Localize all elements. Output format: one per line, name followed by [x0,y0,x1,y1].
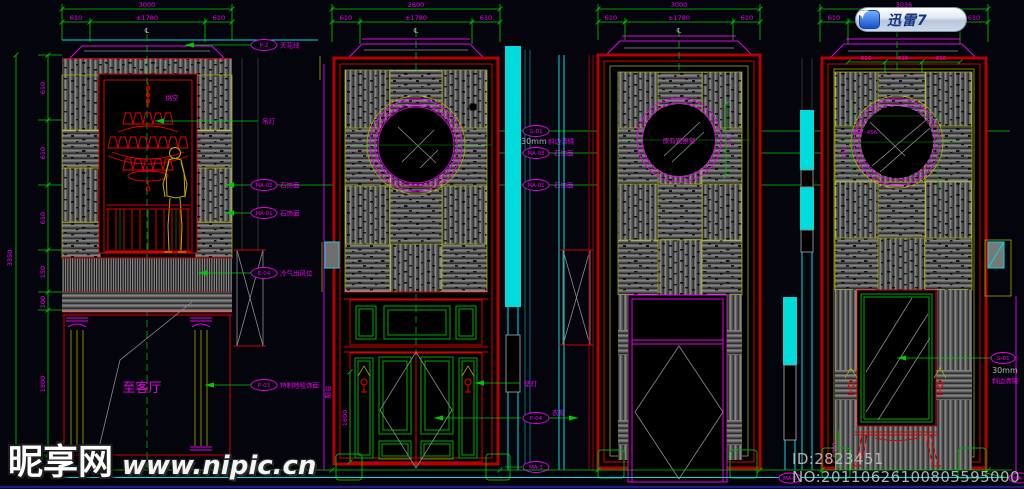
e3-dim-center: ±1780 [668,14,690,22]
e3-window-width: 610 [725,134,733,146]
e2-dim-left: 610 [340,14,352,22]
e3-dim-right: 610 [741,14,753,22]
e4-sub1: 610 [861,56,872,62]
door-leaves [350,352,482,468]
e4-circle-h: 610 [842,146,848,157]
e4-dim-left: 610 [828,14,840,22]
e2-mirror-tag: G-01 [529,129,542,135]
e1-dim-right: 610 [213,14,225,22]
e2-side-text: 阳台 [323,386,332,399]
e1-dim-height-total: 3350 [6,250,14,267]
cad-elevation-sheet: 3000 610 ±1780 610 ℄ 3350 610 610 610 15… [0,0,1024,489]
e4-mirror-label: 斜边清镜 [992,376,1019,385]
e4-mirror-size: 30mm [992,366,1018,375]
e1-stone-a-tag: MA-02 [255,183,272,189]
cad-drawing-canvas: 3000 610 ±1780 610 ℄ 3350 610 610 610 15… [0,0,1024,489]
e1-dim-total: 3000 [139,1,156,9]
e2-dim-center: ±1780 [405,14,427,22]
e1-dim-seg1: 610 [39,82,47,94]
e2-mirror-size: 30mm [521,137,547,146]
e2-wall-lamp-label: 壁灯 [524,379,538,388]
e1-dim-seg4: 150 [39,266,47,278]
stock-id-number: ID:2823451 NO:20110626100805595000 [792,450,1024,486]
e1-dim-left: 610 [70,14,82,22]
xunlei-bird-icon [859,10,880,29]
e1-stone-a-label: 石饰面 [280,181,300,190]
e4-mirror-tag: G-01 [996,356,1009,362]
e2-dim-total: 2600 [408,1,425,9]
elevation-3-window: 3000 610 ±1780 610 ℄ 原有观察窗 610 [558,1,763,482]
e1-centerline-symbol: ℄ [145,27,150,35]
section-bars-left [783,58,814,470]
e2-mirror-label: 斜边清镜 [548,137,575,146]
e1-ac-tag: E-04 [258,271,271,277]
e1-dim-seg3: 610 [39,212,47,224]
e3-dim-total: 3000 [671,1,688,9]
dark-opening [628,295,727,482]
e4-sub2: 610 [898,56,909,62]
wall-section-box [234,58,266,346]
e1-void-label: 挑空 [166,93,180,102]
e2-door-tag: P-04 [530,416,543,422]
e4-sub3: 610 [936,56,947,62]
e1-dim-seg6: 1800 [39,376,47,393]
section-fill-bar [505,46,521,307]
xunlei-7-overlay-button[interactable]: 迅雷7 [855,7,967,32]
elevation-4-mirror: 3036 610 610 610 610 610 200 456 610 [783,1,1019,478]
e1-ceiling-label: 天花线 [280,41,300,50]
e1-dim-seg5: 100 [39,296,47,308]
elevation-1-balcony: 3000 610 ±1780 610 ℄ 3350 610 610 610 15… [6,1,324,470]
e1-dim-center: ±1780 [136,14,158,22]
e1-carpet-label: 特制地毯饰面 [280,381,320,390]
e1-dim-seg2: 610 [39,147,47,159]
e1-carpet-tag: P-03 [258,383,271,389]
e1-chandelier-label: 吊灯 [262,117,276,126]
e4-circle-b: 456 [867,130,878,136]
e1-destination-label: 至客厅 [122,380,161,396]
xunlei-label: 迅雷7 [887,10,928,30]
e1-ceiling-tag: P-2 [260,43,269,49]
e1-stone-b-tag: MA-01 [255,211,272,217]
e2-stone-c-tag: MA-03 [527,151,545,157]
e1-ac-label: 冷气出风位 [280,269,313,278]
e4-dim-right: 610 [968,14,980,22]
e4-circle-a: 200 [852,130,863,136]
e1-stone-b-label: 石饰面 [280,209,300,218]
e2-dim-right: 610 [480,14,492,22]
elevation-2-door: 2600 610 ±1780 610 ℄ [322,1,530,480]
e2-lamp-height: 1800 [341,410,349,427]
e3-dim-left: 610 [605,14,617,22]
e3-window-label: 原有观察窗 [663,136,696,145]
e2-stone-b-tag: MA-01 [527,183,544,189]
